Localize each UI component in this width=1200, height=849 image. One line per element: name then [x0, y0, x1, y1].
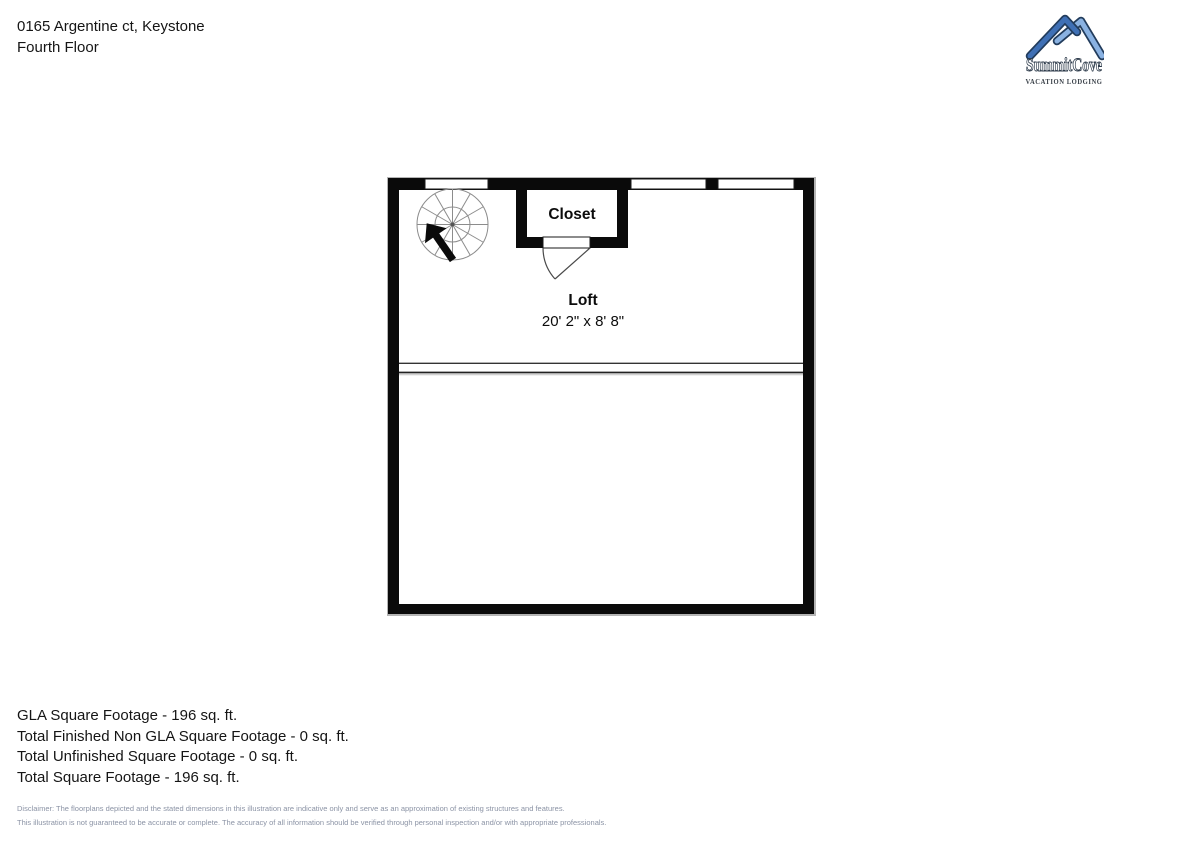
floor-name: Fourth Floor	[17, 38, 205, 59]
closet-door-opening	[543, 237, 590, 248]
closet-room-label: Closet	[516, 206, 628, 224]
disclaimer-line: This illustration is not guaranteed to b…	[17, 816, 606, 830]
logo-graphic: SummitCove VACATION LODGING	[1024, 8, 1104, 88]
summary-line: Total Finished Non GLA Square Footage - …	[17, 727, 349, 748]
floorplan-svg	[383, 173, 819, 619]
header: 0165 Argentine ct, Keystone Fourth Floor	[17, 17, 205, 58]
loft-room-label: Loft	[483, 292, 683, 310]
floorplan-page: 0165 Argentine ct, Keystone Fourth Floor…	[0, 0, 1200, 849]
summary-line: Total Square Footage - 196 sq. ft.	[17, 768, 349, 789]
window	[718, 179, 794, 189]
loft-floor	[399, 190, 803, 604]
floorplan-drawing	[383, 173, 819, 619]
logo-tagline-text: VACATION LODGING	[1026, 77, 1103, 86]
property-address: 0165 Argentine ct, Keystone	[17, 17, 205, 38]
disclaimer: Disclaimer: The floorplans depicted and …	[17, 802, 606, 830]
window	[631, 179, 706, 189]
mountain-left-icon	[1030, 19, 1077, 56]
square-footage-summary: GLA Square Footage - 196 sq. ft. Total F…	[17, 706, 349, 788]
logo-brand-text: SummitCove	[1026, 55, 1102, 76]
staircase-center-post	[451, 223, 455, 227]
summary-line: Total Unfinished Square Footage - 0 sq. …	[17, 747, 349, 768]
summary-line: GLA Square Footage - 196 sq. ft.	[17, 706, 349, 727]
disclaimer-line: Disclaimer: The floorplans depicted and …	[17, 802, 606, 816]
loft-room-dimensions: 20' 2" x 8' 8"	[483, 313, 683, 330]
company-logo: SummitCove VACATION LODGING	[1024, 8, 1104, 88]
window	[425, 179, 488, 189]
